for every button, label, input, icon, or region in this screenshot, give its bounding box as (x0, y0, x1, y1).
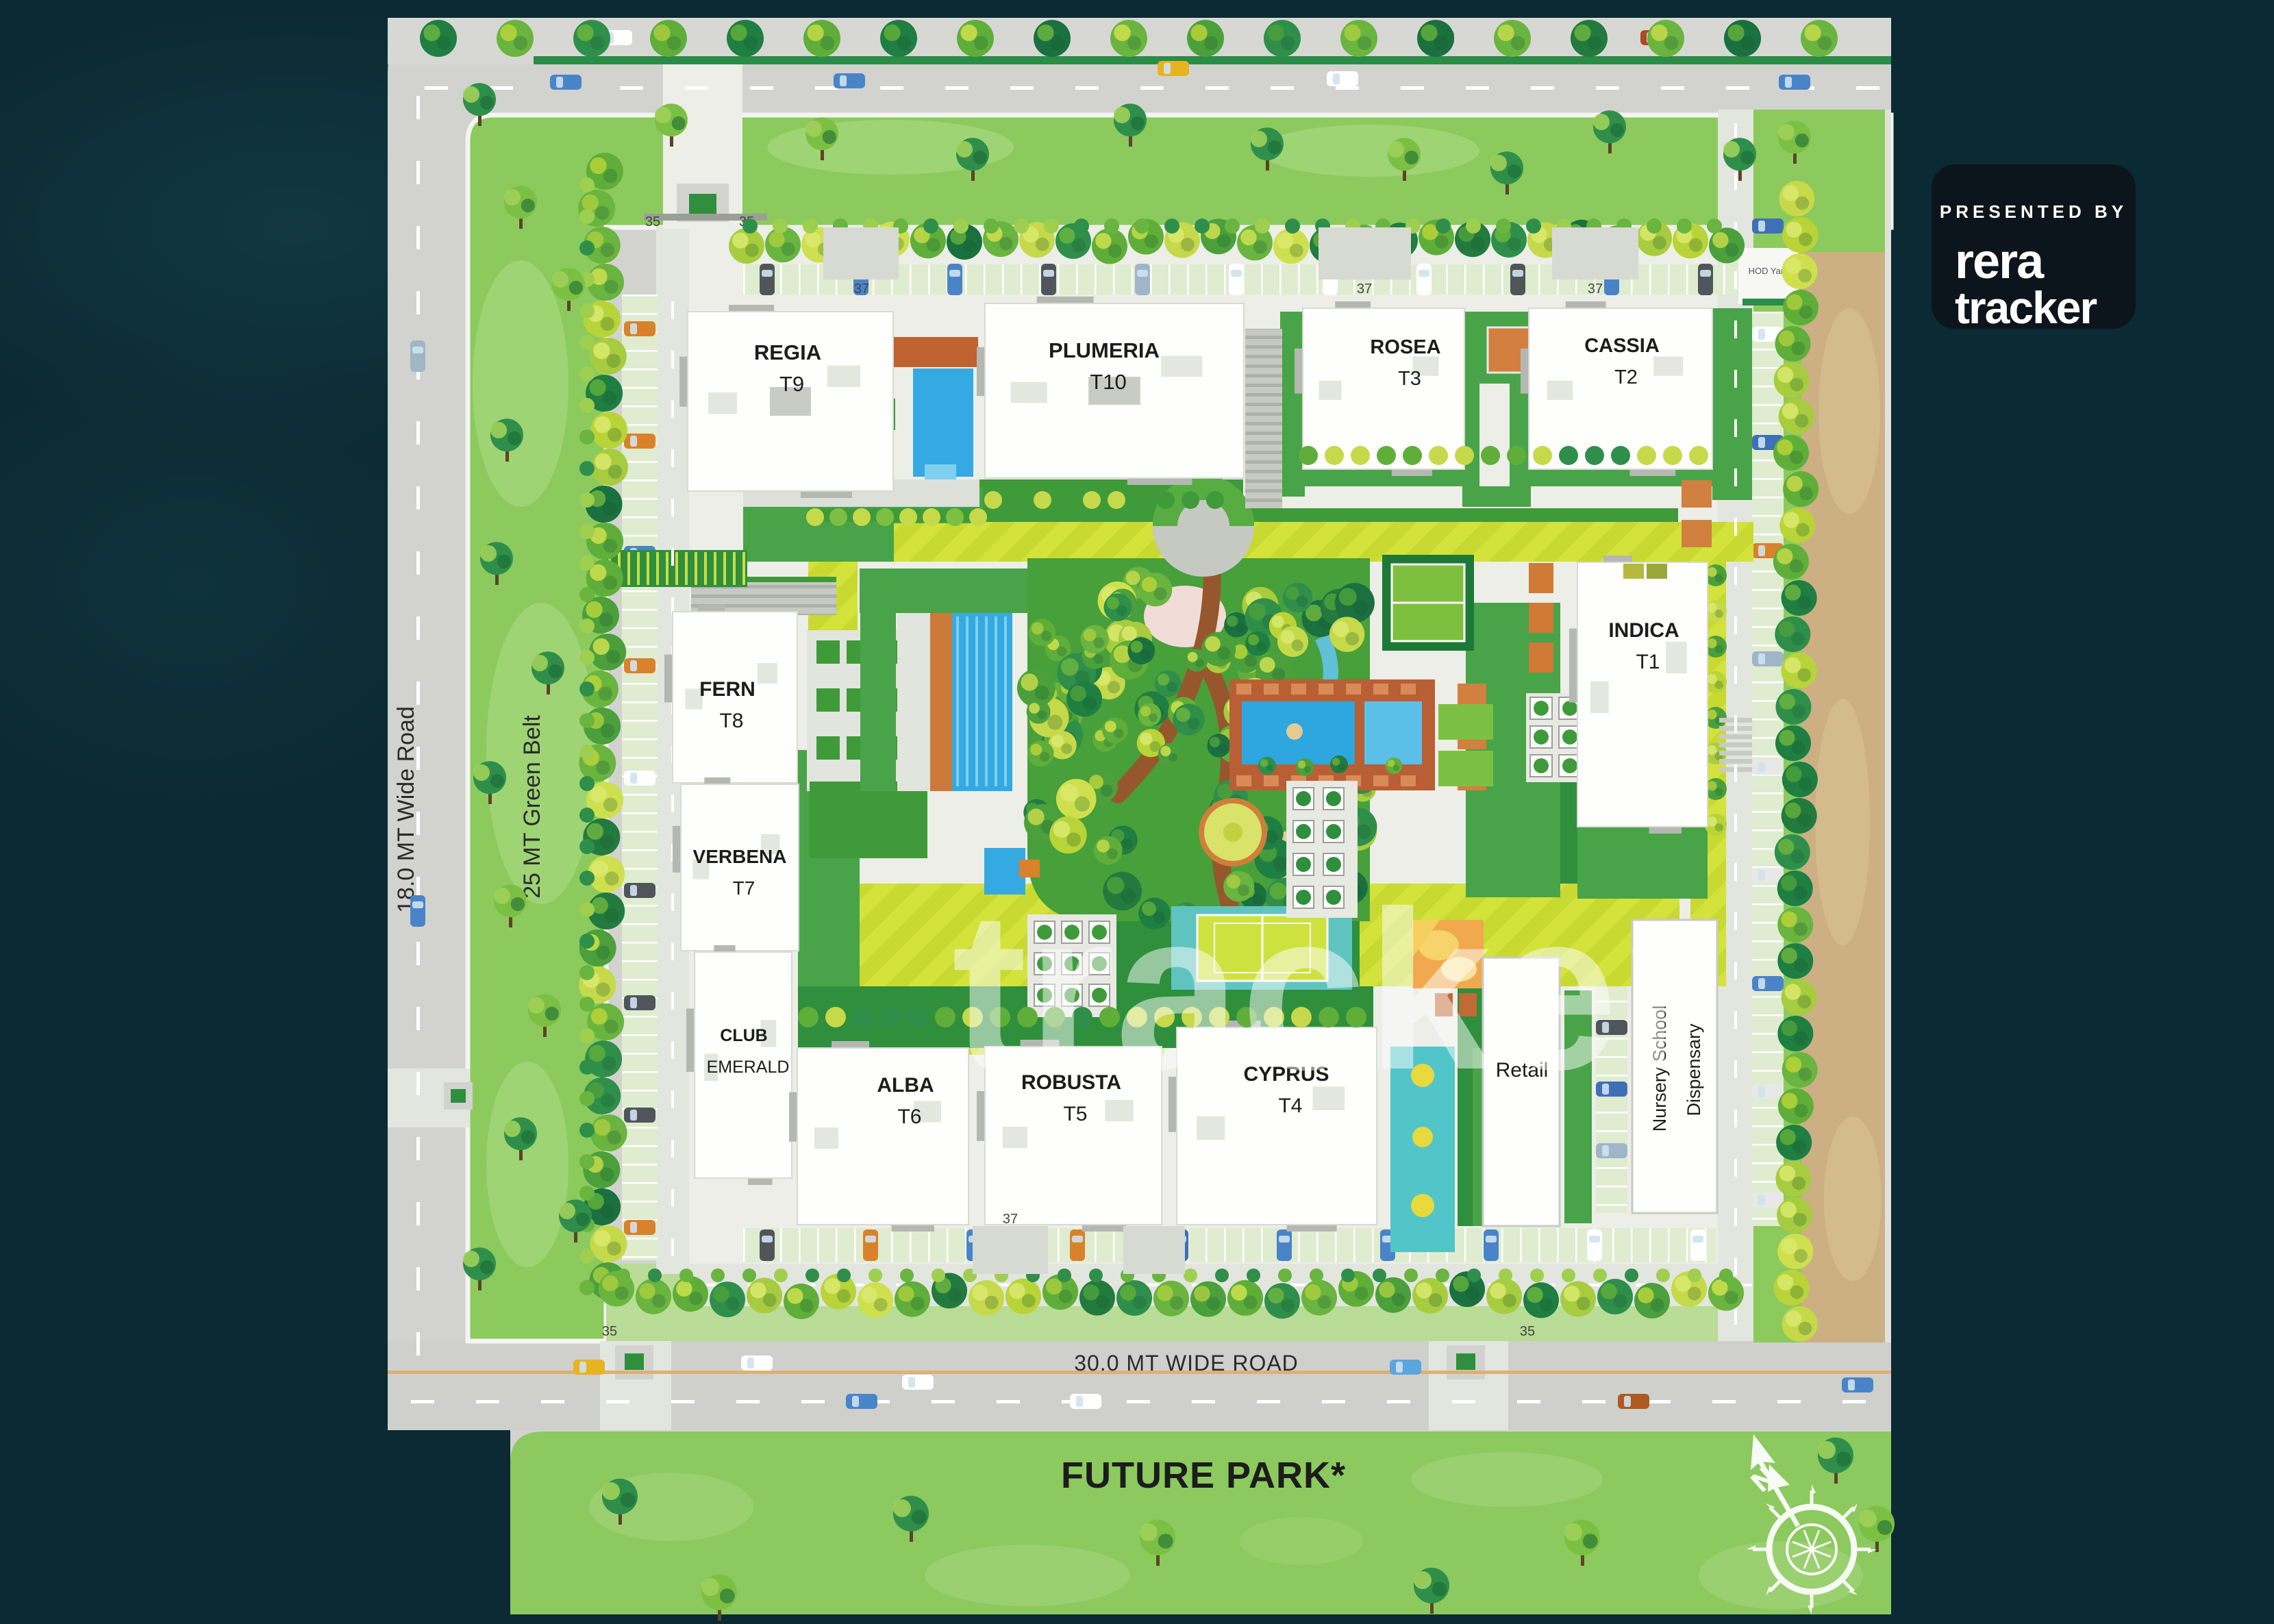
svg-text:T9: T9 (779, 372, 804, 396)
svg-text:T7: T7 (733, 877, 755, 899)
svg-text:REGIA: REGIA (754, 340, 821, 364)
svg-text:37: 37 (854, 282, 869, 297)
svg-text:T1: T1 (1636, 651, 1660, 673)
svg-text:35: 35 (1520, 1324, 1535, 1339)
svg-text:PRESENTED BY: PRESENTED BY (1940, 201, 2127, 222)
svg-text:T10: T10 (1090, 370, 1126, 394)
svg-text:35: 35 (645, 214, 660, 229)
svg-text:37: 37 (1003, 1212, 1018, 1227)
svg-text:37: 37 (1357, 282, 1372, 297)
svg-text:INDICA: INDICA (1608, 619, 1679, 642)
svg-text:ROSEA: ROSEA (1370, 336, 1440, 358)
svg-text:30.0 MT WIDE ROAD: 30.0 MT WIDE ROAD (1074, 1351, 1299, 1375)
svg-text:tracker: tracker (1955, 282, 2097, 333)
svg-text:tracker: tracker (952, 864, 1706, 1116)
svg-text:VERBENA: VERBENA (693, 846, 787, 867)
svg-text:T8: T8 (719, 710, 743, 732)
svg-text:18.0 MT Wide Road: 18.0 MT Wide Road (393, 706, 419, 913)
svg-text:37: 37 (1588, 282, 1603, 297)
svg-text:25 MT Green Belt: 25 MT Green Belt (519, 715, 545, 899)
svg-text:PLUMERIA: PLUMERIA (1049, 338, 1160, 362)
svg-text:rera: rera (1955, 234, 2045, 289)
svg-text:T2: T2 (1614, 366, 1638, 388)
svg-text:ALBA: ALBA (877, 1074, 934, 1097)
svg-text:EMERALD: EMERALD (707, 1058, 790, 1077)
svg-text:CASSIA: CASSIA (1584, 335, 1660, 357)
svg-text:CLUB: CLUB (720, 1026, 767, 1045)
svg-text:T6: T6 (897, 1105, 921, 1128)
svg-text:35: 35 (602, 1324, 617, 1339)
svg-text:T3: T3 (1398, 368, 1421, 390)
svg-text:FERN: FERN (699, 678, 755, 701)
svg-text:FUTURE PARK*: FUTURE PARK* (1061, 1455, 1346, 1496)
